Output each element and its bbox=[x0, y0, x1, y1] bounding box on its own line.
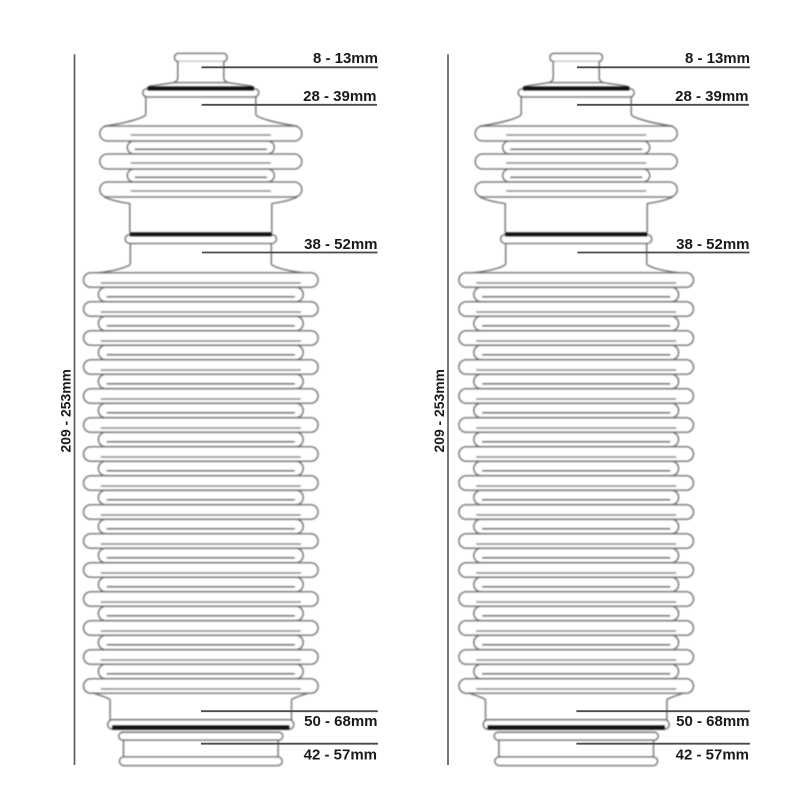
svg-text:28 - 39mm: 28 - 39mm bbox=[675, 88, 748, 105]
svg-text:8 - 13mm: 8 - 13mm bbox=[313, 50, 378, 67]
svg-text:8 - 13mm: 8 - 13mm bbox=[685, 50, 750, 67]
svg-text:42 - 57mm: 42 - 57mm bbox=[304, 746, 377, 763]
svg-text:38 - 52mm: 38 - 52mm bbox=[676, 236, 749, 253]
svg-text:38 - 52mm: 38 - 52mm bbox=[304, 236, 377, 253]
svg-text:50 - 68mm: 50 - 68mm bbox=[304, 713, 377, 730]
svg-text:42 - 57mm: 42 - 57mm bbox=[676, 746, 749, 763]
svg-text:50 - 68mm: 50 - 68mm bbox=[676, 713, 749, 730]
svg-text:28 - 39mm: 28 - 39mm bbox=[303, 88, 376, 105]
svg-text:209 - 253mm: 209 - 253mm bbox=[431, 369, 447, 452]
svg-text:209 - 253mm: 209 - 253mm bbox=[57, 369, 73, 452]
